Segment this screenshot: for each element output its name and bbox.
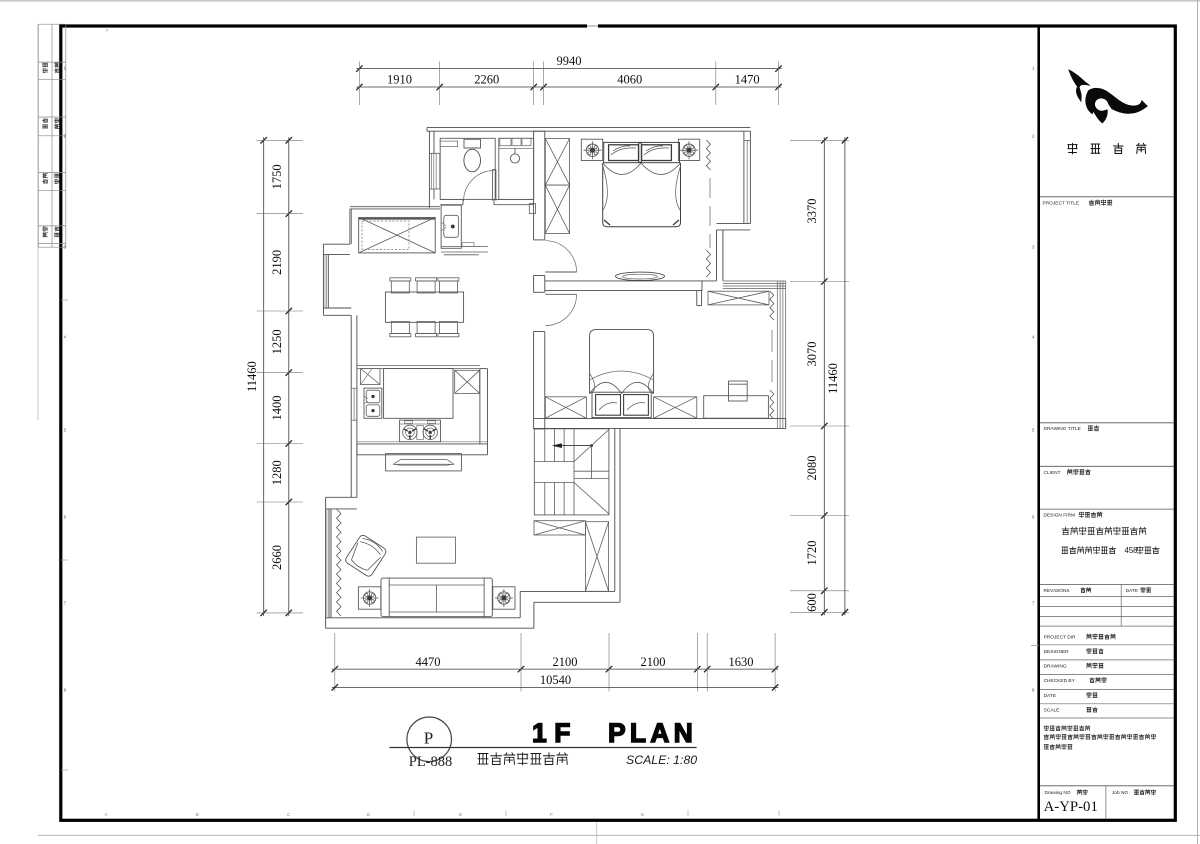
svg-text:Drawing NO: Drawing NO: [1045, 790, 1071, 796]
svg-text:2080: 2080: [805, 456, 819, 481]
svg-text:B: B: [196, 812, 199, 817]
svg-text:3070: 3070: [805, 342, 819, 367]
svg-text:9940: 9940: [557, 54, 582, 68]
svg-text:4470: 4470: [416, 655, 441, 669]
svg-text:1F: 1F: [532, 718, 578, 748]
svg-text:D: D: [367, 812, 370, 817]
svg-text:1470: 1470: [735, 73, 760, 87]
svg-text:CLIENT: CLIENT: [1044, 470, 1061, 476]
svg-text:Job NO: Job NO: [1112, 790, 1129, 796]
svg-text:A: A: [105, 812, 108, 817]
svg-text:A: A: [106, 28, 109, 33]
svg-text:1250: 1250: [270, 329, 284, 354]
svg-text:1400: 1400: [270, 396, 284, 421]
svg-text:PROJECT TITLE: PROJECT TITLE: [1043, 201, 1080, 207]
svg-text:11460: 11460: [245, 361, 259, 392]
svg-text:DRAWING TITLE: DRAWING TITLE: [1044, 426, 1081, 432]
svg-text:2190: 2190: [270, 250, 284, 275]
svg-text:DESIGN FIRM: DESIGN FIRM: [1044, 513, 1075, 519]
svg-text:P: P: [424, 729, 433, 748]
svg-text:4060: 4060: [617, 73, 642, 87]
svg-text:2660: 2660: [270, 545, 284, 570]
svg-text:PROJECT DIR: PROJECT DIR: [1044, 635, 1076, 641]
svg-text:F: F: [550, 812, 553, 817]
svg-text:458: 458: [1125, 546, 1138, 555]
svg-text:2100: 2100: [641, 655, 666, 669]
svg-text:1280: 1280: [270, 460, 284, 485]
svg-text:DATE: DATE: [1126, 588, 1138, 594]
svg-text:SCALE: 1:80: SCALE: 1:80: [626, 753, 697, 767]
svg-text:CHECKED BY: CHECKED BY: [1044, 678, 1076, 684]
svg-text:2100: 2100: [553, 655, 578, 669]
svg-text:A-YP-01: A-YP-01: [1044, 799, 1098, 815]
svg-text:PL-888: PL-888: [409, 754, 453, 770]
svg-text:PLAN: PLAN: [608, 718, 697, 748]
svg-text:2260: 2260: [474, 73, 499, 87]
svg-text:G: G: [641, 812, 644, 817]
svg-text:1750: 1750: [270, 164, 284, 189]
svg-text:C: C: [287, 812, 290, 817]
svg-text:DATE: DATE: [1044, 693, 1056, 699]
svg-text:600: 600: [805, 593, 819, 612]
svg-text:3370: 3370: [805, 199, 819, 224]
svg-text:E: E: [459, 812, 462, 817]
svg-text:DESIGNER: DESIGNER: [1044, 649, 1070, 655]
svg-text:SCALE: SCALE: [1044, 708, 1060, 714]
svg-text:1720: 1720: [805, 541, 819, 566]
svg-text:11460: 11460: [826, 363, 840, 394]
svg-text:10540: 10540: [540, 673, 571, 687]
svg-text:1910: 1910: [387, 73, 412, 87]
svg-text:REVISIONS: REVISIONS: [1044, 588, 1070, 594]
svg-text:1630: 1630: [729, 655, 754, 669]
svg-text:DRAWING: DRAWING: [1044, 664, 1067, 670]
